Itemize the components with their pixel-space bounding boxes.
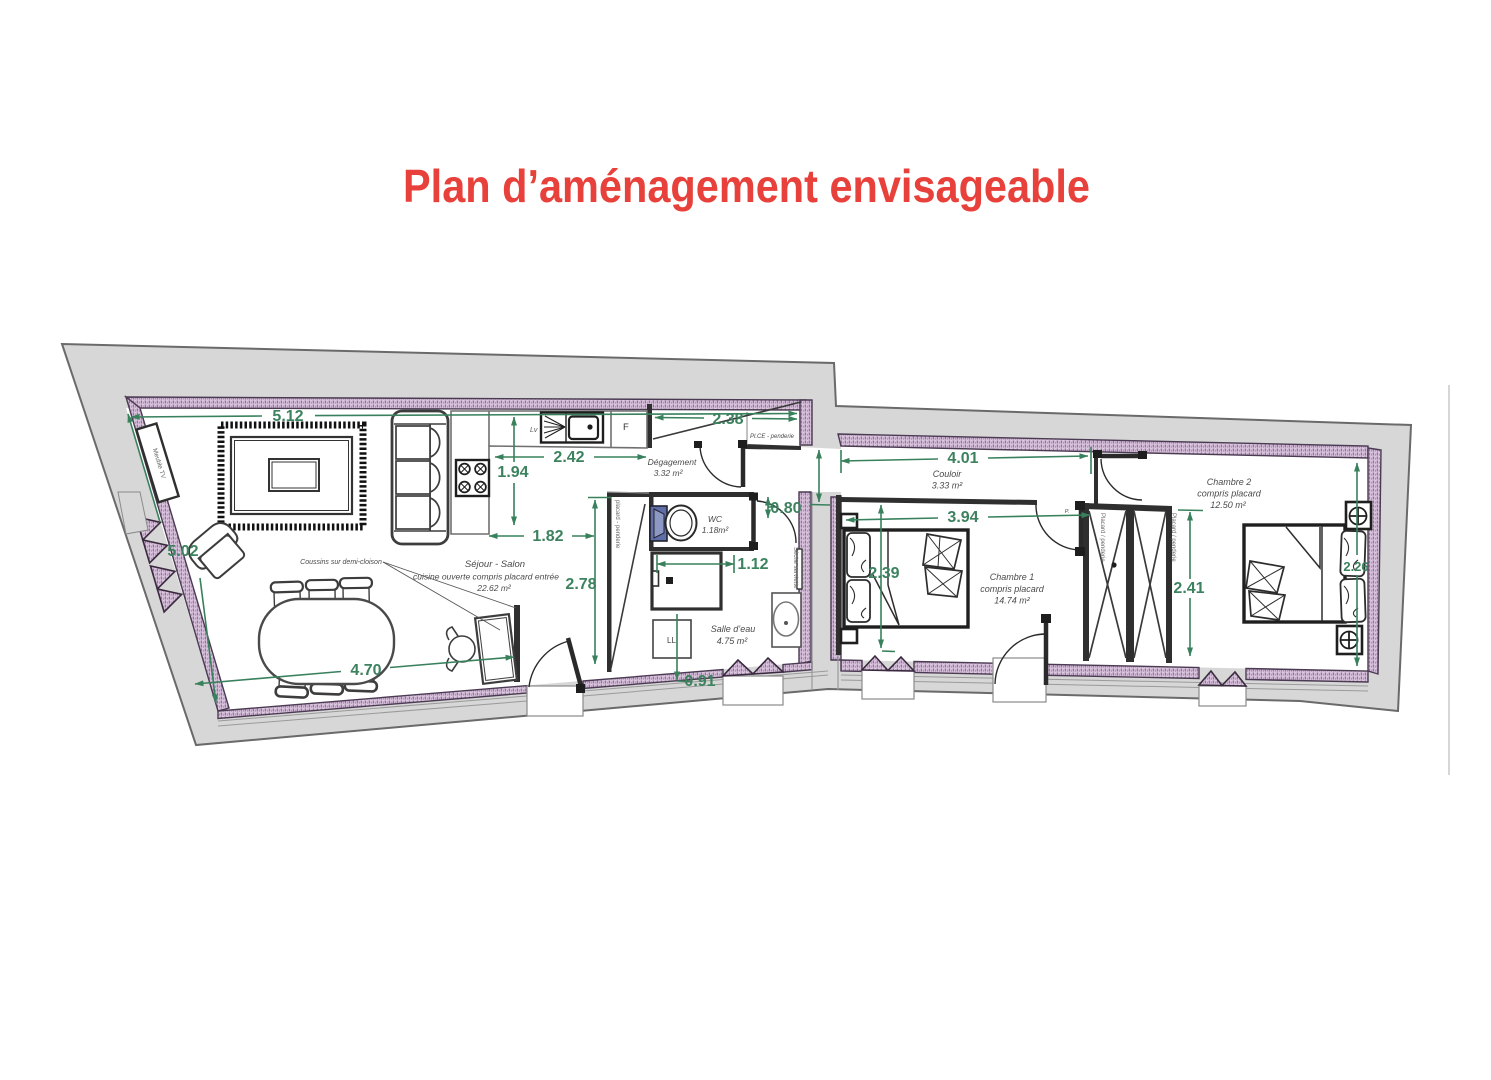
svg-text:Sèche serviette: Sèche serviette — [792, 547, 798, 589]
svg-text:WC: WC — [708, 514, 723, 524]
svg-text:12.50 m²: 12.50 m² — [1210, 500, 1247, 510]
svg-text:1.94: 1.94 — [497, 464, 528, 481]
svg-text:Séjour - Salon: Séjour - Salon — [465, 559, 525, 570]
svg-text:Pl.CE - penderie: Pl.CE - penderie — [750, 434, 795, 440]
svg-text:22.62 m²: 22.62 m² — [476, 583, 512, 593]
svg-text:2.41: 2.41 — [1173, 580, 1204, 597]
svg-text:3.32 m²: 3.32 m² — [654, 468, 684, 478]
svg-text:5.02: 5.02 — [167, 543, 198, 560]
svg-text:2.78: 2.78 — [565, 576, 596, 593]
svg-text:compris placard: compris placard — [980, 584, 1045, 594]
svg-text:compris placard: compris placard — [1197, 489, 1262, 499]
svg-text:2.39: 2.39 — [868, 565, 899, 582]
svg-text:4.70: 4.70 — [350, 662, 381, 679]
svg-text:Chambre 1: Chambre 1 — [990, 572, 1035, 582]
svg-text:5.12: 5.12 — [272, 408, 303, 425]
svg-text:1.82: 1.82 — [532, 528, 563, 545]
svg-text:2.38: 2.38 — [712, 411, 743, 428]
svg-text:LL: LL — [667, 636, 676, 645]
svg-text:1.18m²: 1.18m² — [702, 525, 730, 535]
svg-text:Salle d’eau: Salle d’eau — [711, 624, 756, 634]
svg-text:P.: P. — [1065, 509, 1070, 515]
svg-text:14.74 m²: 14.74 m² — [994, 596, 1031, 606]
svg-text:4.01: 4.01 — [947, 450, 978, 467]
svg-text:Chambre 2: Chambre 2 — [1207, 477, 1252, 487]
svg-text:2.42: 2.42 — [553, 449, 584, 466]
svg-text:Placard / penderie: Placard / penderie — [1170, 513, 1176, 562]
svg-text:placard - penderie: placard - penderie — [614, 500, 620, 549]
svg-text:Placard / penderie: Placard / penderie — [1099, 513, 1105, 562]
svg-text:0.91: 0.91 — [684, 673, 715, 690]
svg-text:3.94: 3.94 — [947, 509, 978, 526]
svg-text:Couloir: Couloir — [933, 469, 963, 479]
svg-text:Plan d’aménagement envisageabl: Plan d’aménagement envisageable — [403, 160, 1090, 212]
svg-text:Lv: Lv — [530, 427, 538, 434]
svg-text:0.80: 0.80 — [770, 500, 801, 517]
svg-text:4.75 m²: 4.75 m² — [717, 636, 749, 646]
svg-text:3.33 m²: 3.33 m² — [932, 481, 964, 491]
svg-text:Coussins sur demi-cloison: Coussins sur demi-cloison — [300, 559, 382, 566]
svg-text:1.12: 1.12 — [737, 556, 768, 573]
svg-text:2.26: 2.26 — [1343, 559, 1368, 574]
svg-text:F: F — [623, 422, 629, 433]
svg-text:Dégagement: Dégagement — [648, 457, 697, 467]
